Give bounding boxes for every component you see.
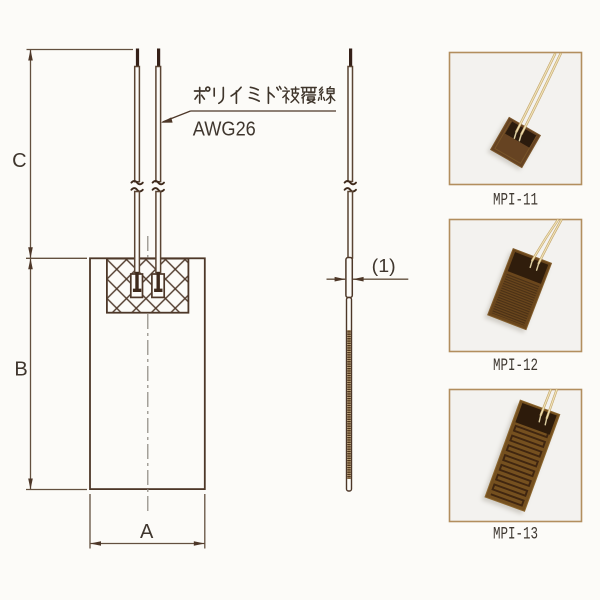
svg-text:MPI-13: MPI-13 <box>493 525 538 545</box>
svg-text:AWG26: AWG26 <box>193 118 256 140</box>
svg-text:(1): (1) <box>372 256 396 276</box>
svg-text:A: A <box>140 521 154 543</box>
svg-text:MPI-12: MPI-12 <box>493 356 538 376</box>
svg-text:MPI-11: MPI-11 <box>493 191 538 211</box>
svg-text:C: C <box>12 150 26 172</box>
svg-text:B: B <box>14 359 27 381</box>
